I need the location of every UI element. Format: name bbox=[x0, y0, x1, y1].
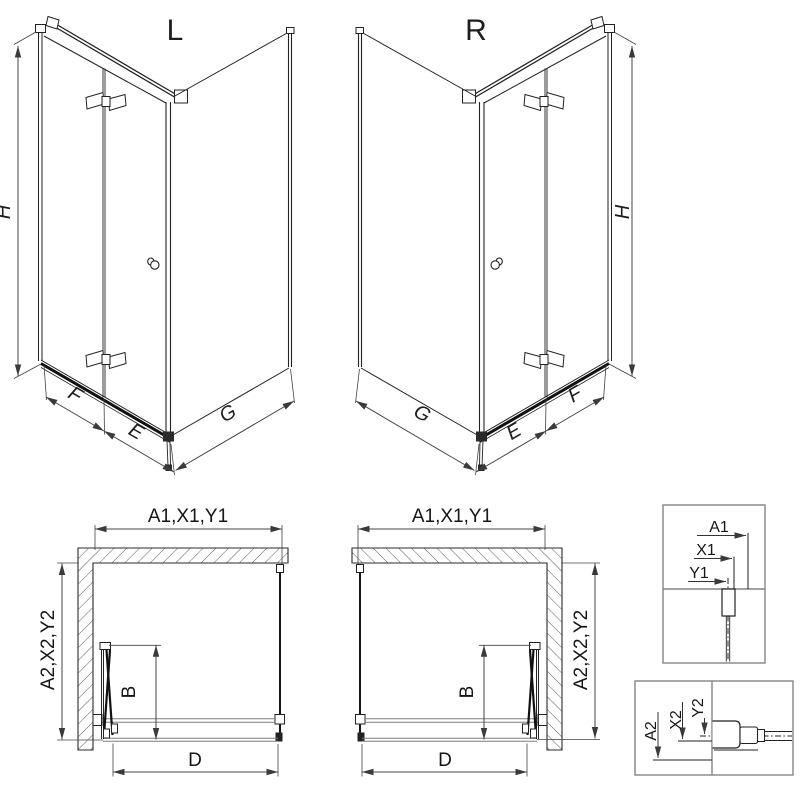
plan-left-entry-label: D bbox=[188, 750, 202, 771]
page-background bbox=[0, 0, 800, 800]
detail-y1-label: Y1 bbox=[689, 565, 709, 582]
variant-right-title: R bbox=[465, 14, 487, 47]
detail-y2-label: Y2 bbox=[690, 698, 707, 718]
detail-x1-label: X1 bbox=[696, 542, 716, 559]
dim-label-height-left: H bbox=[0, 204, 15, 219]
detail-a1-label: A1 bbox=[709, 519, 729, 536]
detail-a2-label: A2 bbox=[643, 721, 660, 741]
plan-right-door-label: B bbox=[457, 686, 478, 699]
plan-right-entry-label: D bbox=[438, 750, 452, 771]
plan-left-depth-label: A2,X2,Y2 bbox=[38, 610, 59, 690]
plan-left-width-label: A1,X1,Y1 bbox=[148, 506, 228, 527]
plan-right-width-label: A1,X1,Y1 bbox=[412, 506, 492, 527]
dim-label-height-right: H bbox=[612, 204, 634, 219]
shower-enclosure-technical-diagram: L H F E G R H F E G A1,X1,Y1 A2,X2,Y2 B … bbox=[0, 0, 800, 800]
detail-box-wall-profile-bottom: A2 X2 Y2 bbox=[635, 681, 793, 775]
diagram-svg: L H F E G R H F E G A1,X1,Y1 A2,X2,Y2 B … bbox=[0, 0, 800, 800]
variant-left-title: L bbox=[167, 14, 184, 47]
detail-box-wall-profile-top: A1 X1 Y1 bbox=[663, 505, 765, 663]
detail-x2-label: X2 bbox=[668, 710, 685, 730]
plan-right-depth-label: A2,X2,Y2 bbox=[571, 610, 592, 690]
plan-left-door-label: B bbox=[119, 686, 140, 699]
